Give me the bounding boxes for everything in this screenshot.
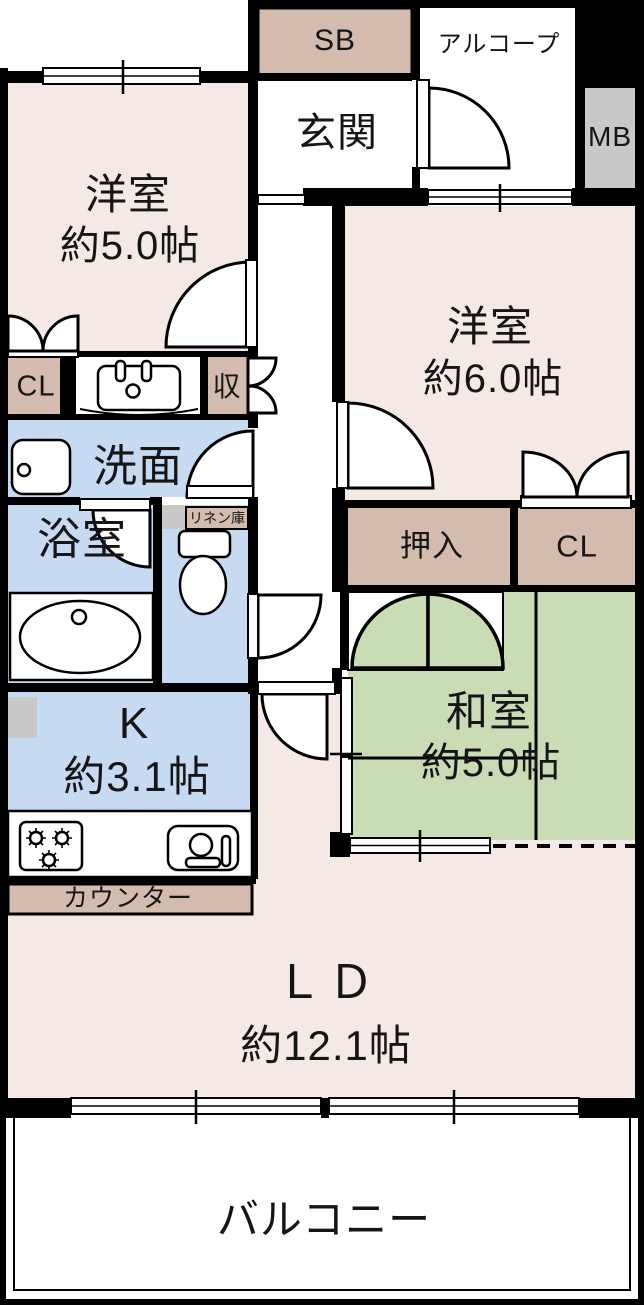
entrance-door [417, 80, 509, 168]
toilet-icon [179, 531, 230, 614]
sink-icon [168, 826, 238, 870]
label-bath: 浴室 [37, 518, 127, 562]
label-genkan: 玄関 [296, 113, 378, 153]
fusuma-doors-oshiire [348, 592, 503, 670]
washing-machine-icon [12, 440, 70, 494]
label-counter: カウンター [63, 887, 193, 912]
label-ld-size: 約12.1帖 [240, 1025, 412, 1067]
label-kitchen-size: 約3.1帖 [63, 756, 210, 798]
label-room5-size: 約5.0帖 [60, 226, 201, 266]
label-senmen: 洗面 [93, 445, 183, 489]
label-linen: リネン庫 [189, 511, 245, 525]
label-cl-main: CL [556, 531, 598, 562]
genkan-step [258, 195, 305, 204]
label-washitsu-size: 約5.0帖 [421, 743, 562, 783]
stove-icon [20, 822, 82, 870]
label-cl-sub: CL [16, 373, 55, 402]
box-linen-gray [160, 505, 185, 529]
label-room6-name: 洋室 [447, 306, 533, 348]
label-room6-size: 約6.0帖 [423, 359, 564, 399]
label-oshiire: 押入 [400, 531, 464, 562]
door-toilet [248, 594, 321, 658]
label-sb: SB [314, 26, 356, 56]
label-room5-name: 洋室 [85, 174, 171, 216]
label-washitsu-name: 和室 [446, 691, 532, 733]
label-shuno: 収 [212, 373, 241, 401]
label-kitchen-name: K [119, 702, 149, 746]
closet-doors-shuno [248, 358, 276, 413]
label-alcove: アルコープ [438, 33, 561, 57]
bathtub-icon [10, 593, 153, 680]
label-balcony: バルコニー [217, 1199, 431, 1241]
label-ld-name: ＬＤ [276, 959, 380, 1005]
box-pipe-space [4, 697, 37, 738]
label-mb: MB [588, 123, 632, 151]
